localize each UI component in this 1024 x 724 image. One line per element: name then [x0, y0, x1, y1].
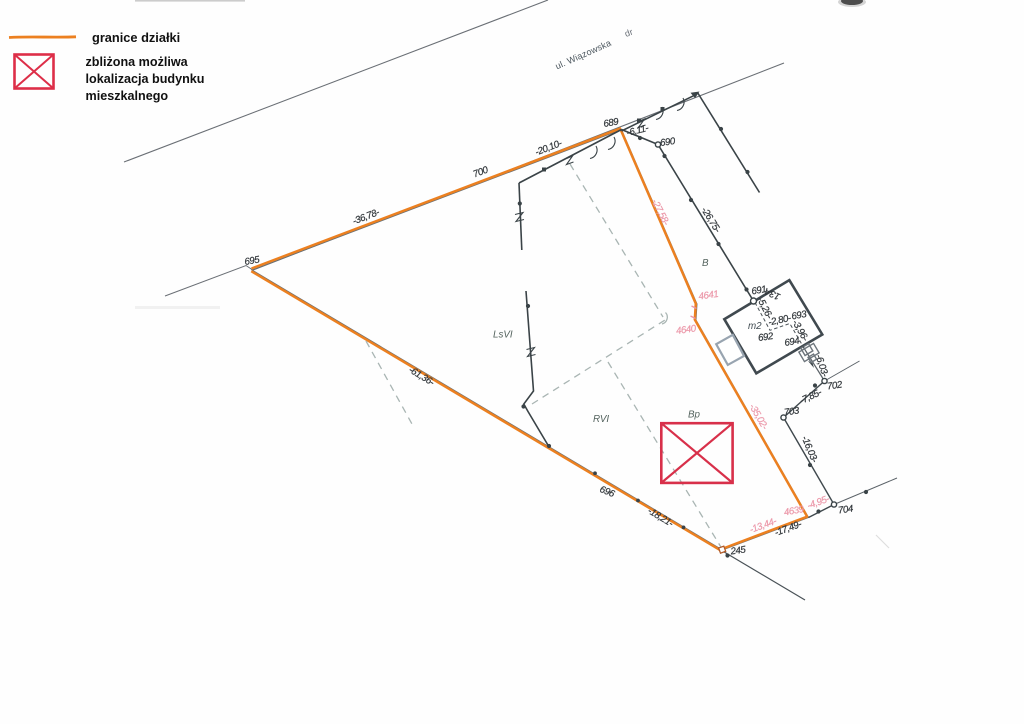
- svg-text:-4,95-: -4,95-: [806, 493, 832, 511]
- svg-text:703: 703: [783, 405, 800, 418]
- svg-text:mieszkalnego: mieszkalnego: [86, 89, 169, 103]
- svg-text:-27,58-: -27,58-: [649, 197, 672, 228]
- svg-text:702: 702: [826, 379, 843, 392]
- svg-text:704: 704: [837, 503, 854, 516]
- svg-text:Bp: Bp: [688, 410, 701, 421]
- svg-text:RVI: RVI: [593, 414, 609, 425]
- svg-text:4640: 4640: [675, 323, 697, 337]
- svg-text:245: 245: [729, 544, 747, 557]
- svg-text:LsVI: LsVI: [493, 330, 513, 341]
- svg-text:granice działki: granice działki: [92, 30, 180, 45]
- svg-text:-17,49-: -17,49-: [773, 519, 804, 539]
- svg-text:B: B: [702, 258, 709, 269]
- svg-text:-7,85-: -7,85-: [798, 387, 824, 407]
- svg-text:690: 690: [659, 136, 676, 149]
- svg-text:lokalizacja budynku: lokalizacja budynku: [86, 72, 205, 86]
- svg-text:m2: m2: [748, 321, 762, 332]
- svg-text:692: 692: [757, 331, 774, 344]
- svg-text:dr: dr: [623, 27, 634, 39]
- svg-text:4639: 4639: [783, 504, 805, 518]
- svg-text:-61,36-: -61,36-: [406, 365, 436, 389]
- svg-text:4641: 4641: [698, 289, 719, 303]
- svg-text:zbliżona możliwa: zbliżona możliwa: [86, 55, 189, 69]
- svg-text:ul. Wiązowska: ul. Wiązowska: [554, 38, 613, 72]
- svg-text:-18,21-: -18,21-: [645, 506, 675, 530]
